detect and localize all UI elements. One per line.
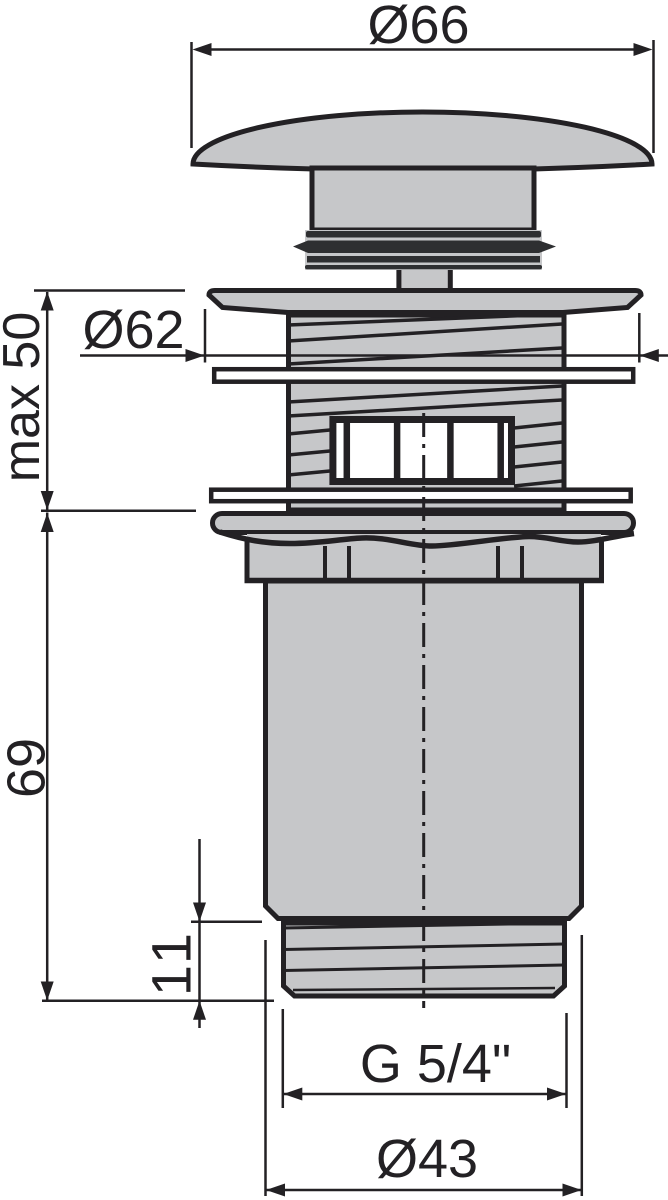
svg-text:max 50: max 50: [0, 312, 51, 483]
svg-text:G 5/4": G 5/4": [360, 1034, 511, 1094]
svg-text:Ø43: Ø43: [376, 1129, 478, 1189]
svg-text:11: 11: [140, 928, 203, 996]
svg-text:Ø66: Ø66: [367, 0, 469, 55]
svg-text:Ø62: Ø62: [82, 300, 184, 360]
